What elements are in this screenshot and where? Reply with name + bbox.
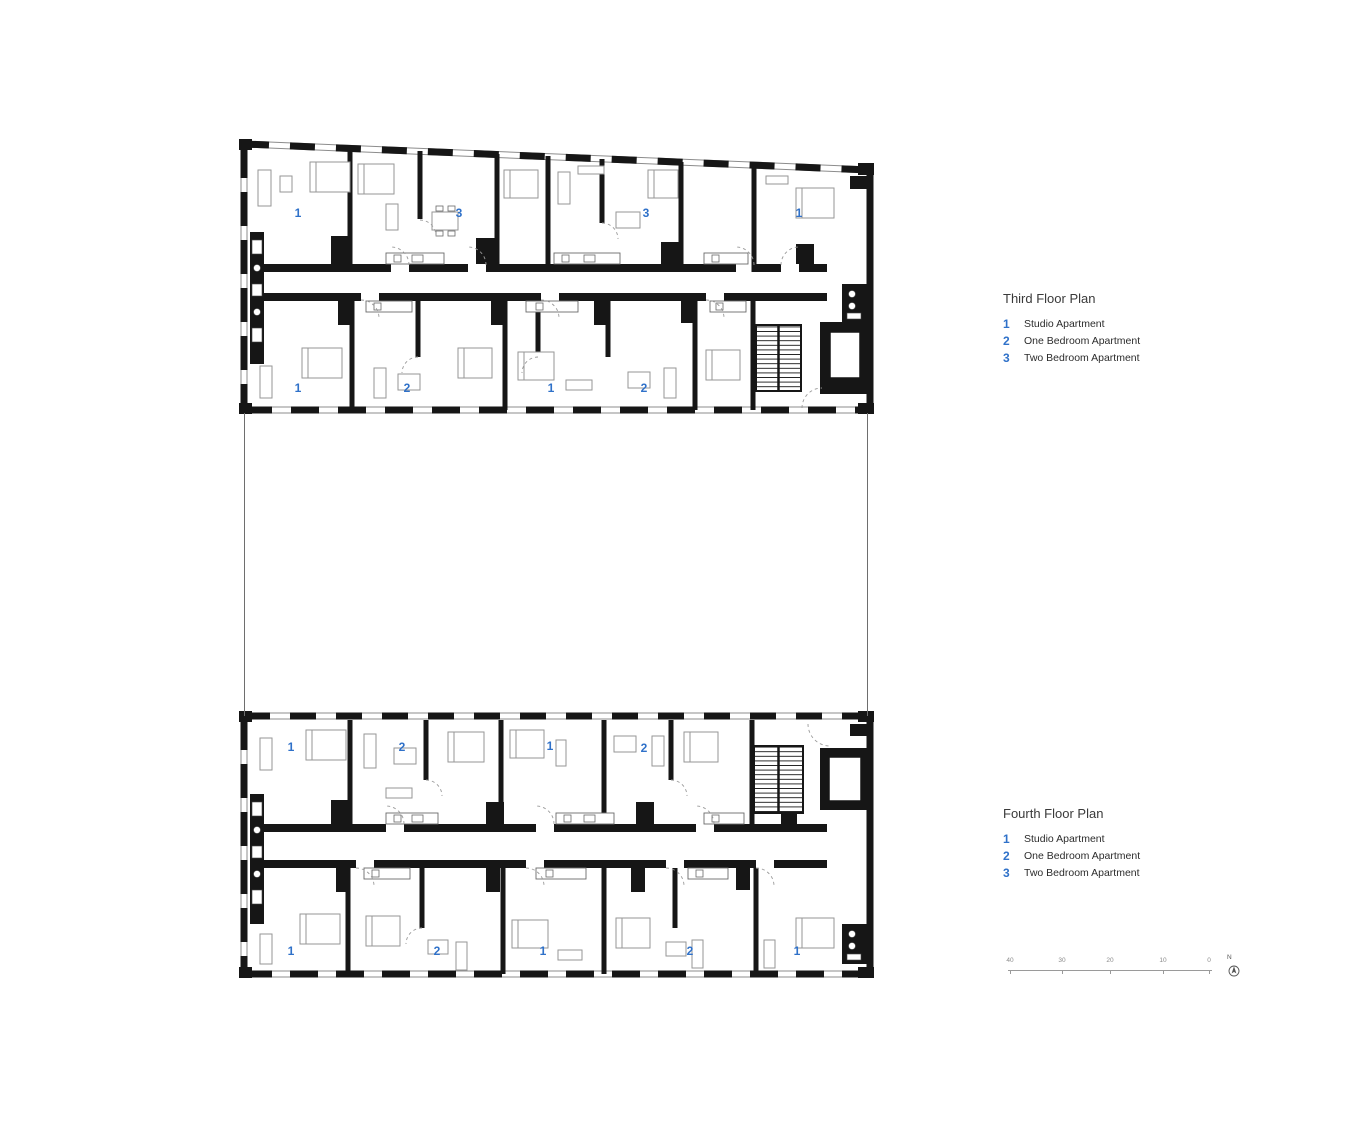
legend-item-label: Two Bedroom Apartment xyxy=(1024,867,1140,879)
legend-item-number: 1 xyxy=(1003,317,1014,331)
legend-item-number: 2 xyxy=(1003,334,1014,348)
legend-item: 3Two Bedroom Apartment xyxy=(1003,864,1233,881)
right-facade-connector-line xyxy=(867,413,868,716)
scale-tick xyxy=(1110,970,1111,974)
legend-list: 1Studio Apartment2One Bedroom Apartment3… xyxy=(1003,830,1233,881)
fourth-floor-legend: Fourth Floor Plan 1Studio Apartment2One … xyxy=(1003,806,1233,881)
elevator xyxy=(820,748,870,810)
legend-item-label: Studio Apartment xyxy=(1024,318,1105,330)
legend-item: 1Studio Apartment xyxy=(1003,830,1233,847)
legend-item-number: 3 xyxy=(1003,866,1014,880)
unit-number-marker: 2 xyxy=(434,945,441,957)
unit-number-marker: 1 xyxy=(295,207,302,219)
left-facade-connector-line xyxy=(244,413,245,716)
stairwell xyxy=(754,746,803,813)
unit-number-marker: 2 xyxy=(641,382,648,394)
unit-number-marker: 1 xyxy=(796,207,803,219)
legend-item: 2One Bedroom Apartment xyxy=(1003,847,1233,864)
scale-tick-label: 30 xyxy=(1058,957,1065,964)
scale-tick xyxy=(1209,970,1210,974)
drawing-sheet: 13311212121212121 Third Floor Plan 1Stud… xyxy=(0,0,1367,1125)
legend-item-label: One Bedroom Apartment xyxy=(1024,850,1140,862)
legend-item: 1Studio Apartment xyxy=(1003,315,1233,332)
scale-tick-label: 0 xyxy=(1207,957,1211,964)
stairwell xyxy=(756,325,801,391)
scale-tick-label: 10 xyxy=(1159,957,1166,964)
scale-bar: 403020100 N xyxy=(1005,953,1260,989)
third-floor-plan-drawing xyxy=(236,136,880,420)
unit-number-marker: 2 xyxy=(399,741,406,753)
scale-tick-label: 20 xyxy=(1106,957,1113,964)
legend-item-number: 3 xyxy=(1003,351,1014,365)
unit-number-marker: 1 xyxy=(295,382,302,394)
legend-item-number: 1 xyxy=(1003,832,1014,846)
unit-number-marker: 2 xyxy=(687,945,694,957)
scale-tick-label: 40 xyxy=(1006,957,1013,964)
legend-item-number: 2 xyxy=(1003,849,1014,863)
legend-title: Fourth Floor Plan xyxy=(1003,806,1233,821)
legend-list: 1Studio Apartment2One Bedroom Apartment3… xyxy=(1003,315,1233,366)
unit-number-marker: 1 xyxy=(288,741,295,753)
legend-title: Third Floor Plan xyxy=(1003,291,1233,306)
legend-item: 2One Bedroom Apartment xyxy=(1003,332,1233,349)
unit-number-marker: 1 xyxy=(548,382,555,394)
fourth-floor-plan-drawing xyxy=(236,708,880,982)
unit-number-marker: 2 xyxy=(404,382,411,394)
unit-number-marker: 1 xyxy=(288,945,295,957)
legend-item-label: Two Bedroom Apartment xyxy=(1024,352,1140,364)
elevator xyxy=(820,322,870,394)
third-floor-legend: Third Floor Plan 1Studio Apartment2One B… xyxy=(1003,291,1233,366)
unit-number-marker: 3 xyxy=(643,207,650,219)
north-arrow-icon: N xyxy=(1225,954,1245,984)
unit-number-marker: 3 xyxy=(456,207,463,219)
legend-item-label: One Bedroom Apartment xyxy=(1024,335,1140,347)
unit-number-marker: 2 xyxy=(641,742,648,754)
scale-tick xyxy=(1010,970,1011,974)
unit-number-marker: 1 xyxy=(547,740,554,752)
legend-item: 3Two Bedroom Apartment xyxy=(1003,349,1233,366)
scale-tick xyxy=(1163,970,1164,974)
unit-number-marker: 1 xyxy=(540,945,547,957)
legend-item-label: Studio Apartment xyxy=(1024,833,1105,845)
north-label: N xyxy=(1227,954,1232,961)
scale-tick xyxy=(1062,970,1063,974)
unit-number-marker: 1 xyxy=(794,945,801,957)
